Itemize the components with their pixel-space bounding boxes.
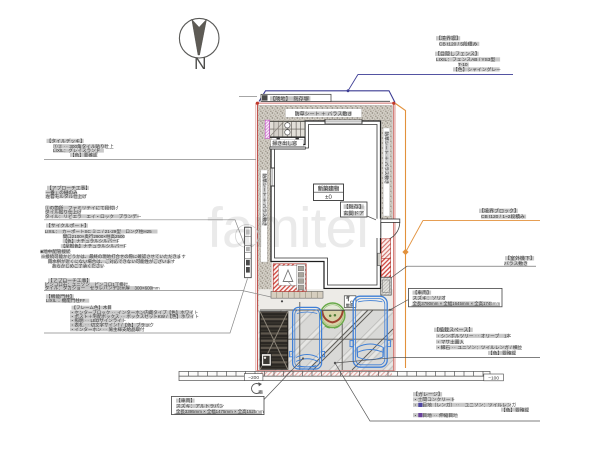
svg-text:・インターホン ‥ 施主様支給品取付: ・インターホン ‥ 施主様支給品取付	[70, 326, 145, 333]
svg-text:−200: −200	[248, 375, 259, 381]
svg-text:あらかじめご了承ください: あらかじめご了承ください	[52, 263, 105, 270]
svg-text:タイル：タカショー セラレバンテ2cm厚 300×600mm: タイル：タカショー セラレバンテ2cm厚 300×600mm	[45, 285, 160, 292]
svg-text:LIXIL：フェンスAB / YS3型: LIXIL：フェンスAB / YS3型	[436, 56, 495, 63]
svg-text:CB t120 / 5段積み: CB t120 / 5段積み	[439, 41, 478, 48]
svg-text:【隣地】 既存塀: 【隣地】 既存塀	[270, 94, 309, 102]
svg-text:【境界ブロック】: 【境界ブロック】	[479, 208, 519, 215]
svg-text:バラス敷き: バラス敷き	[504, 260, 528, 267]
svg-text:【屋根色】ナチュラルシルバーF: 【屋根色】ナチュラルシルバーF	[61, 243, 127, 250]
svg-text:【植栽スペース】: 【植栽スペース】	[434, 327, 473, 334]
svg-text:LIXIL ‥ 機能門柱FF: LIXIL ‥ 機能門柱FF	[46, 297, 86, 304]
svg-text:−100: −100	[488, 376, 499, 382]
svg-text:左官モルタル仕上げ: 左官モルタル仕上げ	[46, 193, 88, 200]
svg-text:散水: 散水	[346, 302, 354, 307]
svg-text:N: N	[194, 54, 206, 73]
svg-text:・ 目地 ‥ 伸縮目地: ・ 目地 ‥ 伸縮目地	[413, 412, 458, 419]
svg-text:【色】シャイングレー: 【色】シャイングレー	[453, 66, 501, 73]
svg-text:タイル：リビエラ エイ・ロック ブランデー: タイル：リビエラ エイ・ロック ブランデー	[45, 213, 142, 220]
svg-text:【車両】: 【車両】	[413, 289, 432, 296]
svg-text:新築建物: 新築建物	[318, 185, 340, 193]
svg-text:防草シート ＋ バラス敷き: 防草シート ＋ バラス敷き	[383, 132, 390, 185]
svg-text:【車両】: 【車両】	[176, 397, 195, 404]
svg-text:【色】要確認: 【色】要確認	[501, 406, 529, 413]
svg-text:【色】要確認: 【色】要確認	[488, 350, 516, 357]
svg-text:掃き出し窓: 掃き出し窓	[272, 140, 297, 147]
svg-text:防草シート ＋ バラス敷き: 防草シート ＋ バラス敷き	[295, 110, 353, 117]
svg-text:【境界塀】: 【境界塀】	[436, 35, 461, 42]
svg-text:【色】要確認: 【色】要確認	[70, 152, 98, 159]
svg-text:CB t120 / 1~2段積み: CB t120 / 1~2段積み	[481, 213, 525, 220]
svg-text:【室外機下】: 【室外機下】	[505, 255, 535, 262]
svg-text:famitei: famitei	[207, 196, 368, 260]
svg-text:【目隠しフェンス】: 【目隠しフェンス】	[435, 51, 480, 58]
